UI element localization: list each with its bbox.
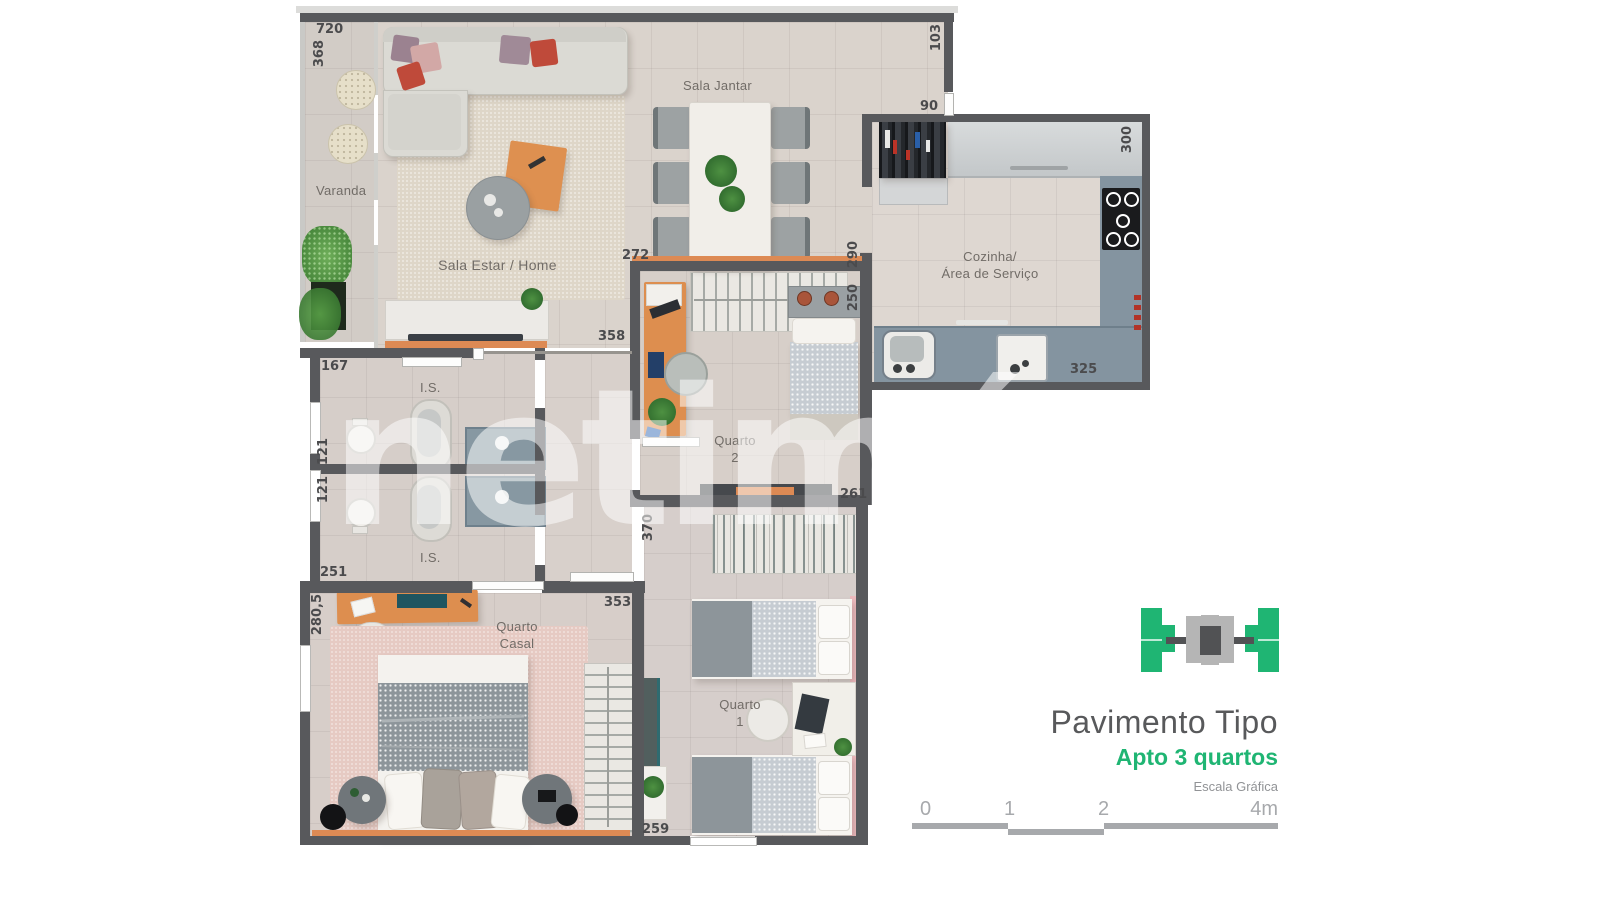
dimension-label: 250 — [846, 284, 861, 311]
cooktop-burner — [1116, 214, 1130, 228]
coffee-table-decor — [484, 194, 496, 206]
console-plant — [521, 288, 543, 310]
room-label-line: Cozinha/ — [963, 249, 1017, 264]
monitor — [648, 352, 664, 378]
shower-head — [495, 436, 509, 450]
room-label-line: 2 — [731, 450, 739, 465]
wall — [860, 253, 872, 505]
flower-pot — [797, 291, 812, 306]
wall — [300, 836, 690, 845]
room-label-is-top: I.S. — [420, 379, 441, 396]
wall — [862, 114, 1150, 122]
cooktop-burner — [1124, 192, 1139, 207]
wall — [535, 348, 545, 360]
wine-bottle — [915, 132, 920, 148]
wine-bottle — [926, 140, 930, 152]
faucet — [906, 364, 915, 373]
legend-title: Pavimento Tipo — [1050, 704, 1278, 741]
toilet — [346, 498, 376, 528]
notepad — [803, 733, 826, 749]
faucet — [1022, 360, 1029, 367]
scale-tick-0: 0 — [920, 798, 931, 821]
dining-table — [689, 102, 771, 268]
scale-tick-4m: 4m — [1250, 798, 1278, 821]
bed-duvet — [752, 757, 816, 833]
dimension-label: 259 — [642, 822, 669, 837]
bed-duvet — [752, 601, 816, 677]
wall — [632, 581, 644, 836]
room-label-is-bottom: I.S. — [420, 549, 441, 566]
dimension-label: 90 — [920, 99, 938, 114]
wall — [755, 836, 868, 845]
bed-pillow — [818, 761, 850, 795]
dimension-label: 167 — [321, 359, 348, 374]
scale-bar-segment — [1104, 823, 1278, 829]
room-label-line: 1 — [736, 714, 744, 729]
sofa-cushion — [388, 94, 461, 150]
bed-blanket — [692, 757, 754, 833]
bathtub-basin — [417, 485, 441, 529]
balcony-partition-opening — [374, 95, 378, 153]
bed-pillow — [818, 605, 850, 639]
wall — [310, 464, 545, 474]
scale-tick-2: 2 — [1098, 798, 1109, 821]
wall — [300, 710, 310, 836]
dimension-label: 103 — [929, 24, 944, 51]
floor-plan-image: 720 368 103 90 300 272 290 250 358 167 1… — [0, 0, 1600, 900]
developer-logo — [1141, 608, 1279, 674]
room-label-quarto2: Quarto 2 — [705, 432, 765, 466]
legend-subtitle: Apto 3 quartos — [1116, 744, 1278, 771]
dining-chair — [771, 162, 810, 204]
balcony-partition-opening — [374, 200, 378, 245]
room-label-varanda: Varanda — [316, 182, 366, 199]
closet-quarto1 — [712, 514, 860, 574]
wall — [542, 581, 645, 593]
nightstand-decor — [362, 794, 370, 802]
door-quarto1 — [570, 572, 634, 582]
laundry-sink-basin — [890, 336, 924, 362]
bed-pillow — [420, 768, 463, 830]
toilet-tank — [352, 418, 368, 426]
wine-bottle — [906, 150, 910, 160]
sofa-pillow — [530, 39, 559, 68]
toilet-tank — [352, 526, 368, 534]
double-bed — [378, 655, 528, 838]
tv — [408, 334, 523, 341]
hanging-plant — [299, 288, 341, 340]
wall — [630, 495, 866, 507]
room-label-line: Quarto — [719, 697, 761, 712]
towel — [956, 320, 1008, 325]
toilet — [346, 424, 376, 454]
faucet — [1010, 364, 1020, 374]
dining-chair — [771, 107, 810, 149]
room-label-sala-estar: Sala Estar / Home — [430, 257, 565, 274]
hanging-plant — [302, 226, 352, 286]
shower-head — [495, 490, 509, 504]
room-label-line: Quarto — [714, 433, 756, 448]
corredor-floor — [545, 351, 632, 581]
cooktop-burner — [1106, 192, 1121, 207]
dining-chair — [771, 217, 810, 259]
floor-plant-quarto1 — [642, 776, 664, 798]
desk-plant-quarto1 — [834, 738, 852, 756]
single-bed — [692, 599, 852, 679]
console-shelf — [385, 341, 547, 348]
faucet — [893, 364, 902, 373]
scale-caption: Escala Gráfica — [1193, 779, 1278, 794]
bed-blanket — [692, 601, 754, 677]
dimension-label: 272 — [622, 248, 649, 263]
wine-bottle — [893, 140, 897, 154]
bathtub-basin — [417, 409, 441, 457]
dimension-label: 325 — [1070, 362, 1097, 377]
nightstand-decor — [350, 788, 359, 797]
dimension-label: 720 — [316, 22, 343, 37]
flower-pot — [824, 291, 839, 306]
bar-counter — [879, 178, 948, 205]
door-is-top — [402, 357, 462, 367]
floor-stool — [320, 804, 346, 830]
rattan-chair — [336, 70, 376, 110]
cooktop-burner — [1124, 232, 1139, 247]
wall — [300, 593, 310, 645]
dimension-label: 251 — [320, 565, 347, 580]
dimension-label: 300 — [1120, 126, 1135, 153]
dimension-label: 290 — [846, 241, 861, 268]
room-label-line: Quarto — [496, 619, 538, 634]
room-label-quarto-casal: Quarto Casal — [487, 618, 547, 652]
threshold-line — [483, 351, 632, 354]
wall — [535, 565, 545, 581]
wall — [310, 520, 320, 581]
dimension-label: 368 — [312, 40, 327, 67]
wall — [300, 13, 954, 22]
wine-bottle — [885, 130, 890, 148]
wall — [944, 13, 953, 92]
kitchen-sink — [996, 334, 1048, 382]
scale-tick-1: 1 — [1004, 798, 1015, 821]
window-quarto-casal — [300, 645, 311, 712]
door-post — [473, 348, 484, 360]
scale-bar-segment — [1008, 829, 1104, 835]
rattan-chair — [328, 124, 368, 164]
desk-chair-quarto2 — [664, 352, 708, 396]
counter-handle — [1010, 166, 1068, 170]
dining-chair — [653, 217, 692, 259]
sofa-pillow — [499, 35, 531, 66]
room-label-line: Área de Serviço — [942, 266, 1039, 281]
single-bed — [692, 755, 852, 835]
dimension-label: 261 — [840, 487, 867, 502]
dimension-label: 121 — [316, 476, 331, 503]
room-label-sala-jantar: Sala Jantar — [683, 77, 752, 94]
bed-duvet-quarto2 — [790, 342, 858, 414]
bed-pillow — [818, 641, 850, 675]
dimension-label: 280,5 — [310, 594, 325, 635]
wall — [862, 114, 872, 187]
dimension-label: 358 — [598, 329, 625, 344]
dining-chair — [653, 162, 692, 204]
balcony-partition — [374, 22, 378, 348]
bed-foot-quarto2 — [790, 414, 858, 440]
wall — [535, 408, 545, 515]
wall-shadow — [296, 6, 958, 13]
entrance-door — [944, 93, 954, 116]
wall — [866, 382, 1150, 390]
door-quarto2 — [642, 437, 700, 447]
spice-rack — [1134, 290, 1141, 330]
wardrobe-strip-quarto1 — [644, 678, 660, 770]
table-plant — [719, 186, 745, 212]
dimension-label: 121 — [316, 438, 331, 465]
wall — [856, 505, 868, 845]
dimension-label: 370 — [641, 514, 656, 541]
floor-stool — [556, 804, 578, 826]
room-label-cozinha: Cozinha/ Área de Serviço — [920, 248, 1060, 282]
wall — [300, 581, 472, 593]
dining-chair — [653, 107, 692, 149]
dimension-label: 353 — [604, 595, 631, 610]
wall — [630, 261, 866, 271]
desk-plant — [648, 398, 676, 426]
window-quarto1 — [690, 837, 757, 846]
table-plant — [705, 155, 737, 187]
half-wall-ledge — [312, 830, 630, 836]
cooktop-burner — [1106, 232, 1121, 247]
room-label-quarto1: Quarto 1 — [710, 696, 770, 730]
wall — [310, 348, 320, 402]
half-wall-ledge — [632, 256, 862, 261]
bed-sheet-fold — [378, 655, 528, 685]
scale-bar-segment — [912, 823, 1008, 829]
door-quarto-casal — [472, 581, 544, 590]
wall — [630, 261, 640, 439]
wardrobe-casal — [584, 663, 636, 833]
laptop-casal — [397, 594, 447, 608]
nightstand-decor — [538, 790, 556, 802]
wall — [1142, 114, 1150, 390]
bed-pillow — [818, 797, 850, 831]
bed-pillow-quarto2 — [792, 318, 856, 344]
room-label-line: Casal — [500, 636, 535, 651]
wardrobe-rail — [607, 667, 609, 827]
bed-duvet — [378, 683, 528, 771]
coffee-table-decor — [494, 208, 503, 217]
